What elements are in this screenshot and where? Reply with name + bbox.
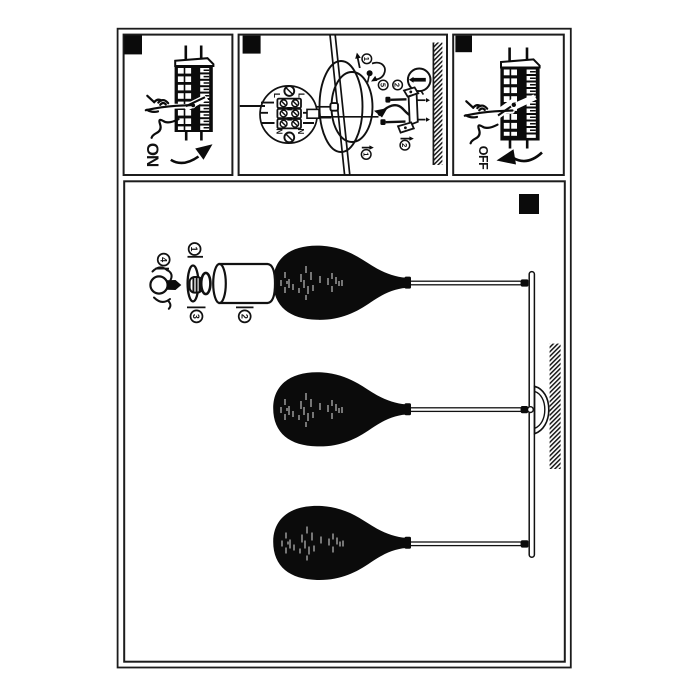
- svg-text:L: L: [272, 93, 281, 98]
- svg-text:4: 4: [158, 257, 168, 262]
- svg-text:2: 2: [400, 143, 409, 147]
- svg-text:1: 1: [362, 57, 371, 61]
- svg-text:L: L: [296, 93, 305, 98]
- svg-text:ON: ON: [143, 143, 162, 167]
- svg-text:5: 5: [378, 83, 387, 87]
- svg-text:OFF: OFF: [476, 146, 490, 170]
- svg-text:N: N: [274, 129, 283, 135]
- svg-text:N: N: [296, 129, 305, 135]
- svg-text:2: 2: [393, 83, 402, 87]
- svg-text:1: 1: [189, 246, 199, 251]
- svg-text:2: 2: [239, 314, 249, 319]
- svg-text:3: 3: [191, 314, 201, 319]
- svg-text:1: 1: [361, 152, 370, 156]
